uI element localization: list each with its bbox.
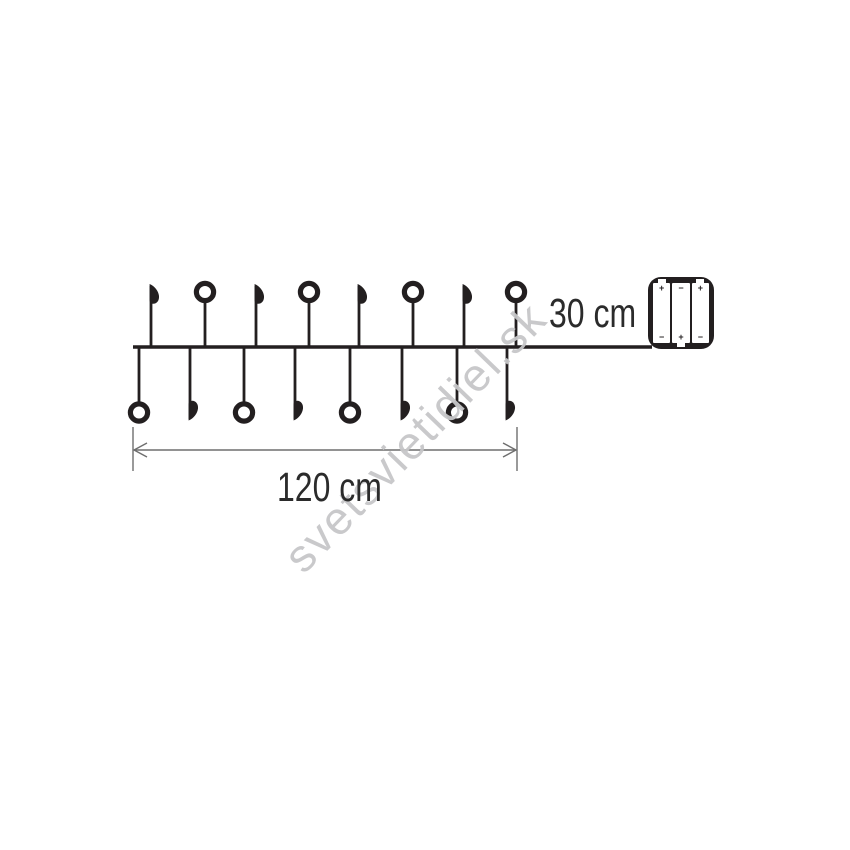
battery-minus-symbol: − <box>659 333 664 342</box>
battery-plus-symbol: + <box>698 284 703 293</box>
battery: − + <box>672 283 689 343</box>
battery-minus-symbol: − <box>698 333 703 342</box>
leaf-bulb <box>294 401 303 421</box>
leaf-bulb <box>358 284 367 304</box>
battery-terminal-nub <box>658 279 666 283</box>
leaf-bulb <box>463 284 472 304</box>
battery: + − <box>653 283 670 343</box>
battery-box: + − − + + − <box>648 277 714 349</box>
string-length-label: 120 cm <box>277 467 382 508</box>
round-bulb <box>300 283 317 300</box>
lead-length-label: 30 cm <box>549 293 636 334</box>
round-bulb <box>404 283 421 300</box>
battery-plus-symbol: + <box>678 333 683 342</box>
battery-terminal-nub <box>696 279 704 283</box>
leaf-bulb <box>189 401 198 421</box>
battery-terminal-nub <box>677 343 685 347</box>
leaf-bulb <box>255 284 264 304</box>
battery: + − <box>692 283 709 343</box>
product-diagram-canvas: svetsvietidiel.sk 120 cm 30 cm + − − + +… <box>0 0 850 850</box>
leaf-bulb <box>150 284 159 304</box>
round-bulb <box>235 404 252 421</box>
battery-plus-symbol: + <box>659 284 664 293</box>
round-bulb <box>341 404 358 421</box>
round-bulb <box>196 283 213 300</box>
battery-minus-symbol: − <box>678 284 683 293</box>
round-bulb <box>130 404 147 421</box>
leaf-bulb <box>506 401 515 421</box>
